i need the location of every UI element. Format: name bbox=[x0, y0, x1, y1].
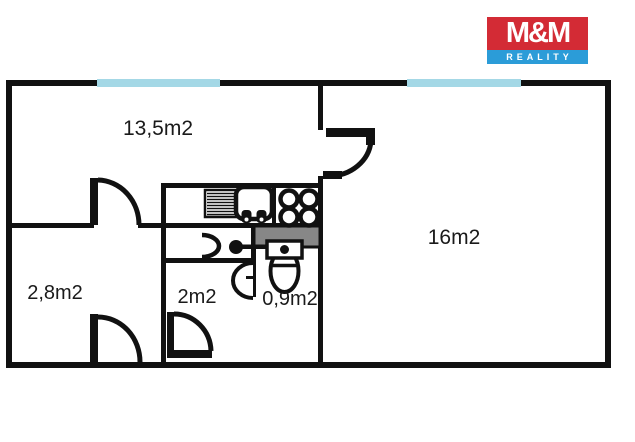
toilet-flush-dot bbox=[280, 245, 289, 254]
floorplan-canvas: M&M REALITY bbox=[0, 0, 635, 442]
door-pivot-dot bbox=[229, 240, 243, 254]
sink-tap-dot bbox=[245, 218, 249, 222]
door-swing-bedroom bbox=[329, 141, 371, 176]
door-leaf-entry bbox=[90, 314, 98, 364]
door-swing-wc bbox=[202, 235, 219, 257]
wall-center-upper bbox=[318, 84, 323, 130]
room-label-living: 13,5m2 bbox=[98, 118, 218, 139]
wall-horizontal-left bbox=[6, 223, 94, 228]
window-icon bbox=[407, 79, 521, 87]
room-label-bedroom: 16m2 bbox=[394, 227, 514, 248]
door-leaf-line-wc bbox=[242, 245, 268, 250]
wall-hall-bathroom bbox=[166, 258, 253, 263]
door-swing-bathroom bbox=[174, 314, 211, 351]
floorplan-drawing bbox=[0, 0, 635, 442]
room-label-hall: 2,8m2 bbox=[10, 283, 100, 303]
sink-tap-dot bbox=[260, 218, 264, 222]
door-sill-bathroom bbox=[167, 350, 212, 358]
door-swing-entry bbox=[98, 317, 140, 362]
outer-wall-right bbox=[605, 80, 611, 368]
stove-burner-icon bbox=[301, 191, 318, 208]
door-swing-living bbox=[98, 180, 139, 225]
wall-center-lower bbox=[318, 176, 323, 366]
wall-vertical-mid bbox=[161, 183, 166, 366]
window-icon bbox=[97, 79, 220, 87]
room-label-bathroom: 2m2 bbox=[167, 287, 227, 307]
door-leaf-living bbox=[90, 178, 98, 225]
stove-burner-icon bbox=[301, 209, 318, 226]
stove-burner-icon bbox=[281, 191, 298, 208]
stove-burner-icon bbox=[281, 209, 298, 226]
door-leaf-bathroom bbox=[167, 312, 174, 356]
kitchen-sink-icon bbox=[236, 187, 272, 219]
washbasin-icon bbox=[233, 263, 253, 298]
room-label-wc: 0,9m2 bbox=[255, 289, 325, 309]
